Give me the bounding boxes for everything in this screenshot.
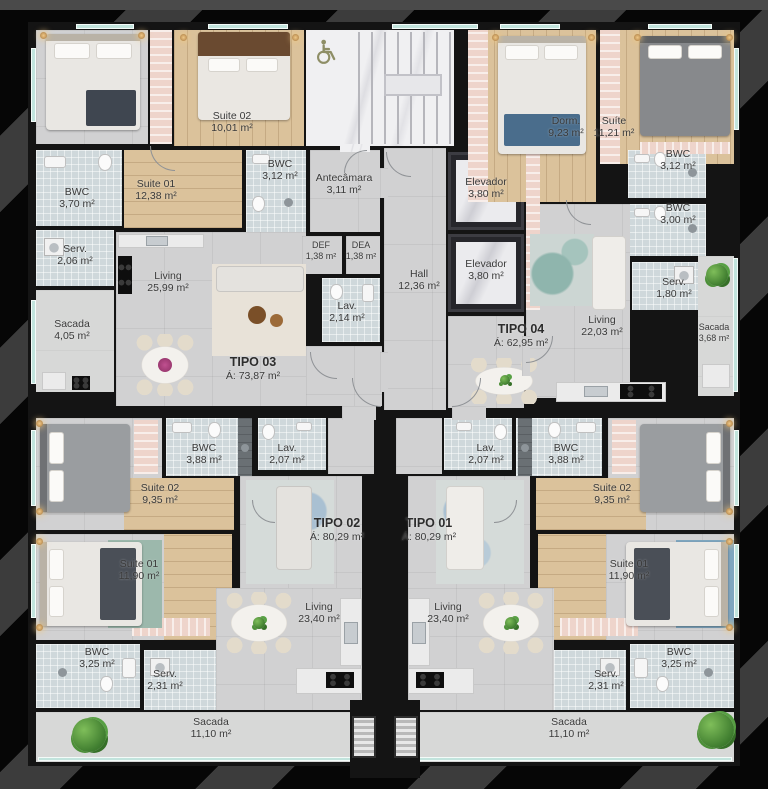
room-label-t3-bwc1: BWC3,70 m² (59, 186, 95, 211)
t1-wardrobe (612, 420, 636, 474)
toilet (494, 424, 507, 440)
unit-label-tipo02: TIPO 02Á: 80,29 m² (310, 516, 364, 543)
shower-drain (58, 668, 67, 677)
t2-sofa (276, 486, 312, 570)
room-label-t1-lav: Lav.2,07 m² (468, 442, 504, 467)
room-label-t1-living: Living23,40 m² (427, 601, 468, 626)
window (500, 24, 560, 29)
window (734, 430, 739, 506)
toilet (656, 676, 669, 692)
room-label-t1-bwc2: BWC3,88 m² (548, 442, 584, 467)
unit-label-tipo01: TIPO 01Á: 80,29 m² (402, 516, 456, 543)
room-label-antecamara: Antecâmara3,11 m² (316, 172, 373, 197)
plant-icon (505, 617, 517, 629)
t1-sacada-glass (410, 757, 732, 761)
ac-condenser (394, 716, 418, 758)
room-label-t2-sacada: Sacada11,10 m² (191, 716, 232, 741)
t4-wardrobe (600, 30, 620, 164)
lamp (292, 34, 299, 41)
t1-cooktop (416, 672, 444, 688)
t4-sacada-bench (702, 364, 730, 388)
room-label-t4-sacada: Sacada3,68 m² (699, 322, 730, 343)
lamp (726, 508, 733, 515)
t4-sacada-glass (733, 258, 738, 392)
room-label-t1-suite02: Suite 029,35 m² (593, 482, 632, 507)
window (648, 24, 712, 29)
room-label-t4-bwc1: BWC3,12 m² (660, 148, 696, 173)
room-label-t2-suite01: Suite 0111,90 m² (119, 558, 160, 583)
t3-wardrobe (150, 30, 172, 144)
plant-icon (72, 718, 106, 752)
toilet (262, 424, 275, 440)
room-label-t1-serv: Serv.2,31 m² (588, 668, 624, 693)
lamp (36, 624, 43, 631)
ac-condenser (352, 716, 376, 758)
antecamara-door-gap (380, 168, 388, 198)
shower-drain (241, 444, 249, 452)
t1-entry-door-gap (452, 406, 486, 420)
toilet (98, 154, 112, 171)
room-label-t3-lav: Lav.2,14 m² (329, 300, 365, 325)
sink (296, 422, 312, 431)
sink (634, 658, 648, 678)
sink (44, 156, 66, 168)
bed (40, 542, 142, 626)
room-label-t1-sacada: Sacada11,10 m² (549, 716, 590, 741)
toilet (100, 676, 113, 692)
room-label-hall: Hall12,36 m² (398, 268, 439, 293)
lamp (36, 420, 43, 427)
t3-sofa (216, 266, 304, 292)
sink (634, 208, 650, 217)
room-label-t2-bwc2: BWC3,88 m² (186, 442, 222, 467)
window (734, 544, 739, 618)
lamp (726, 34, 733, 41)
room-label-t4-serv: Serv.1,80 m² (656, 276, 692, 301)
lamp (40, 32, 47, 39)
t3-pouf (270, 314, 283, 327)
room-label-t2-living: Living23,40 m² (298, 601, 339, 626)
unit-label-tipo03: TIPO 03Á: 73,87 m² (226, 355, 280, 382)
t2-cooktop (326, 672, 354, 688)
t3-pouf (248, 306, 266, 324)
bed (40, 424, 130, 512)
sink (122, 658, 136, 678)
sink (576, 422, 596, 433)
shower-drain (521, 444, 529, 452)
room-label-dea: DEA1,38 m² (346, 240, 377, 261)
room-label-t3-suite02: Suite 0210,01 m² (211, 110, 252, 135)
t2-sacada-glass (38, 757, 360, 761)
plant-icon (253, 617, 265, 629)
room-label-t2-suite02: Suite 029,35 m² (141, 482, 180, 507)
t3-hall-door-gap (380, 352, 388, 392)
room-label-t1-suite01: Suite 0111,90 m² (609, 558, 650, 583)
room-label-t2-serv: Serv.2,31 m² (147, 668, 183, 693)
room-label-t4-dorm: Dorm.9,23 m² (548, 115, 584, 140)
t4-sofa (592, 236, 626, 310)
window (392, 24, 478, 29)
t4-rug (530, 234, 594, 306)
lamp (36, 508, 43, 515)
window (208, 24, 288, 29)
bed (46, 34, 140, 130)
plant-icon (698, 712, 734, 748)
room-label-def: DEF1,38 m² (306, 240, 337, 261)
room-label-t2-lav: Lav.2,07 m² (269, 442, 305, 467)
t3-cooktop (118, 256, 132, 294)
bed (640, 424, 730, 512)
lamp (726, 538, 733, 545)
lamp (634, 34, 641, 41)
room-label-t3-suite01: Suite 0112,38 m² (135, 178, 176, 203)
shower-drain (704, 668, 713, 677)
room-label-t2-bwc1: BWC3,25 m² (79, 646, 115, 671)
window (734, 48, 739, 130)
room-label-t3-sacada: Sacada4,05 m² (54, 318, 90, 343)
t3-sacada-bench (42, 372, 66, 390)
t3-kitchen-sink (146, 236, 168, 246)
toilet (208, 422, 221, 438)
toilet (330, 284, 343, 300)
toilet (252, 196, 265, 212)
plant-icon (706, 264, 728, 286)
lamp (180, 34, 187, 41)
window (31, 430, 36, 506)
lamp (492, 34, 499, 41)
t4-kitchen-sink (584, 386, 608, 397)
room-label-t3-living: Living25,99 m² (147, 270, 188, 295)
t4-cooktop (620, 384, 662, 399)
t3-sacada-grill (72, 376, 90, 390)
sink (634, 154, 650, 163)
t2-kitchen-sink (344, 622, 358, 644)
room-label-elevator-2: Elevador3,80 m² (465, 258, 506, 283)
lamp (726, 624, 733, 631)
toilet (548, 422, 561, 438)
t2-wardrobe (134, 420, 158, 474)
flower-vase (158, 358, 172, 372)
room-label-t4-suite: Suíte11,21 m² (594, 115, 635, 140)
lamp (36, 538, 43, 545)
window (31, 48, 36, 122)
lamp (588, 34, 595, 41)
t2-entry (328, 418, 374, 474)
window (31, 544, 36, 618)
top-gray-band (0, 0, 768, 10)
window (31, 300, 36, 384)
bed (198, 32, 290, 120)
shower-drain (284, 198, 293, 207)
room-label-t1-bwc1: BWC3,25 m² (661, 646, 697, 671)
lamp (138, 32, 145, 39)
stair-landing (384, 74, 442, 96)
sink (172, 422, 192, 433)
bed (640, 36, 730, 136)
room-label-t4-bwc2: BWC3,00 m² (660, 202, 696, 227)
room-stairwell (306, 30, 454, 146)
plant-icon (500, 375, 510, 385)
wheelchair-icon (312, 38, 340, 71)
room-label-elevator-1: Elevador3,80 m² (465, 176, 506, 201)
room-label-t3-bwc2: BWC3,12 m² (262, 158, 298, 183)
sink (456, 422, 472, 431)
floor-plan-image: Suite 0210,01 m² BWC3,12 m² Antecâmara3,… (0, 0, 768, 789)
unit-label-tipo04: TIPO 04Á: 62,95 m² (494, 322, 548, 349)
window (76, 24, 134, 29)
room-label-t3-serv: Serv.2,06 m² (57, 243, 93, 268)
t1-entry (396, 418, 442, 474)
lamp (726, 420, 733, 427)
t2-entry-door-gap (342, 406, 376, 420)
bed (626, 542, 728, 626)
room-label-t4-living: Living22,03 m² (581, 314, 622, 339)
t1-kitchen-sink (412, 622, 426, 644)
